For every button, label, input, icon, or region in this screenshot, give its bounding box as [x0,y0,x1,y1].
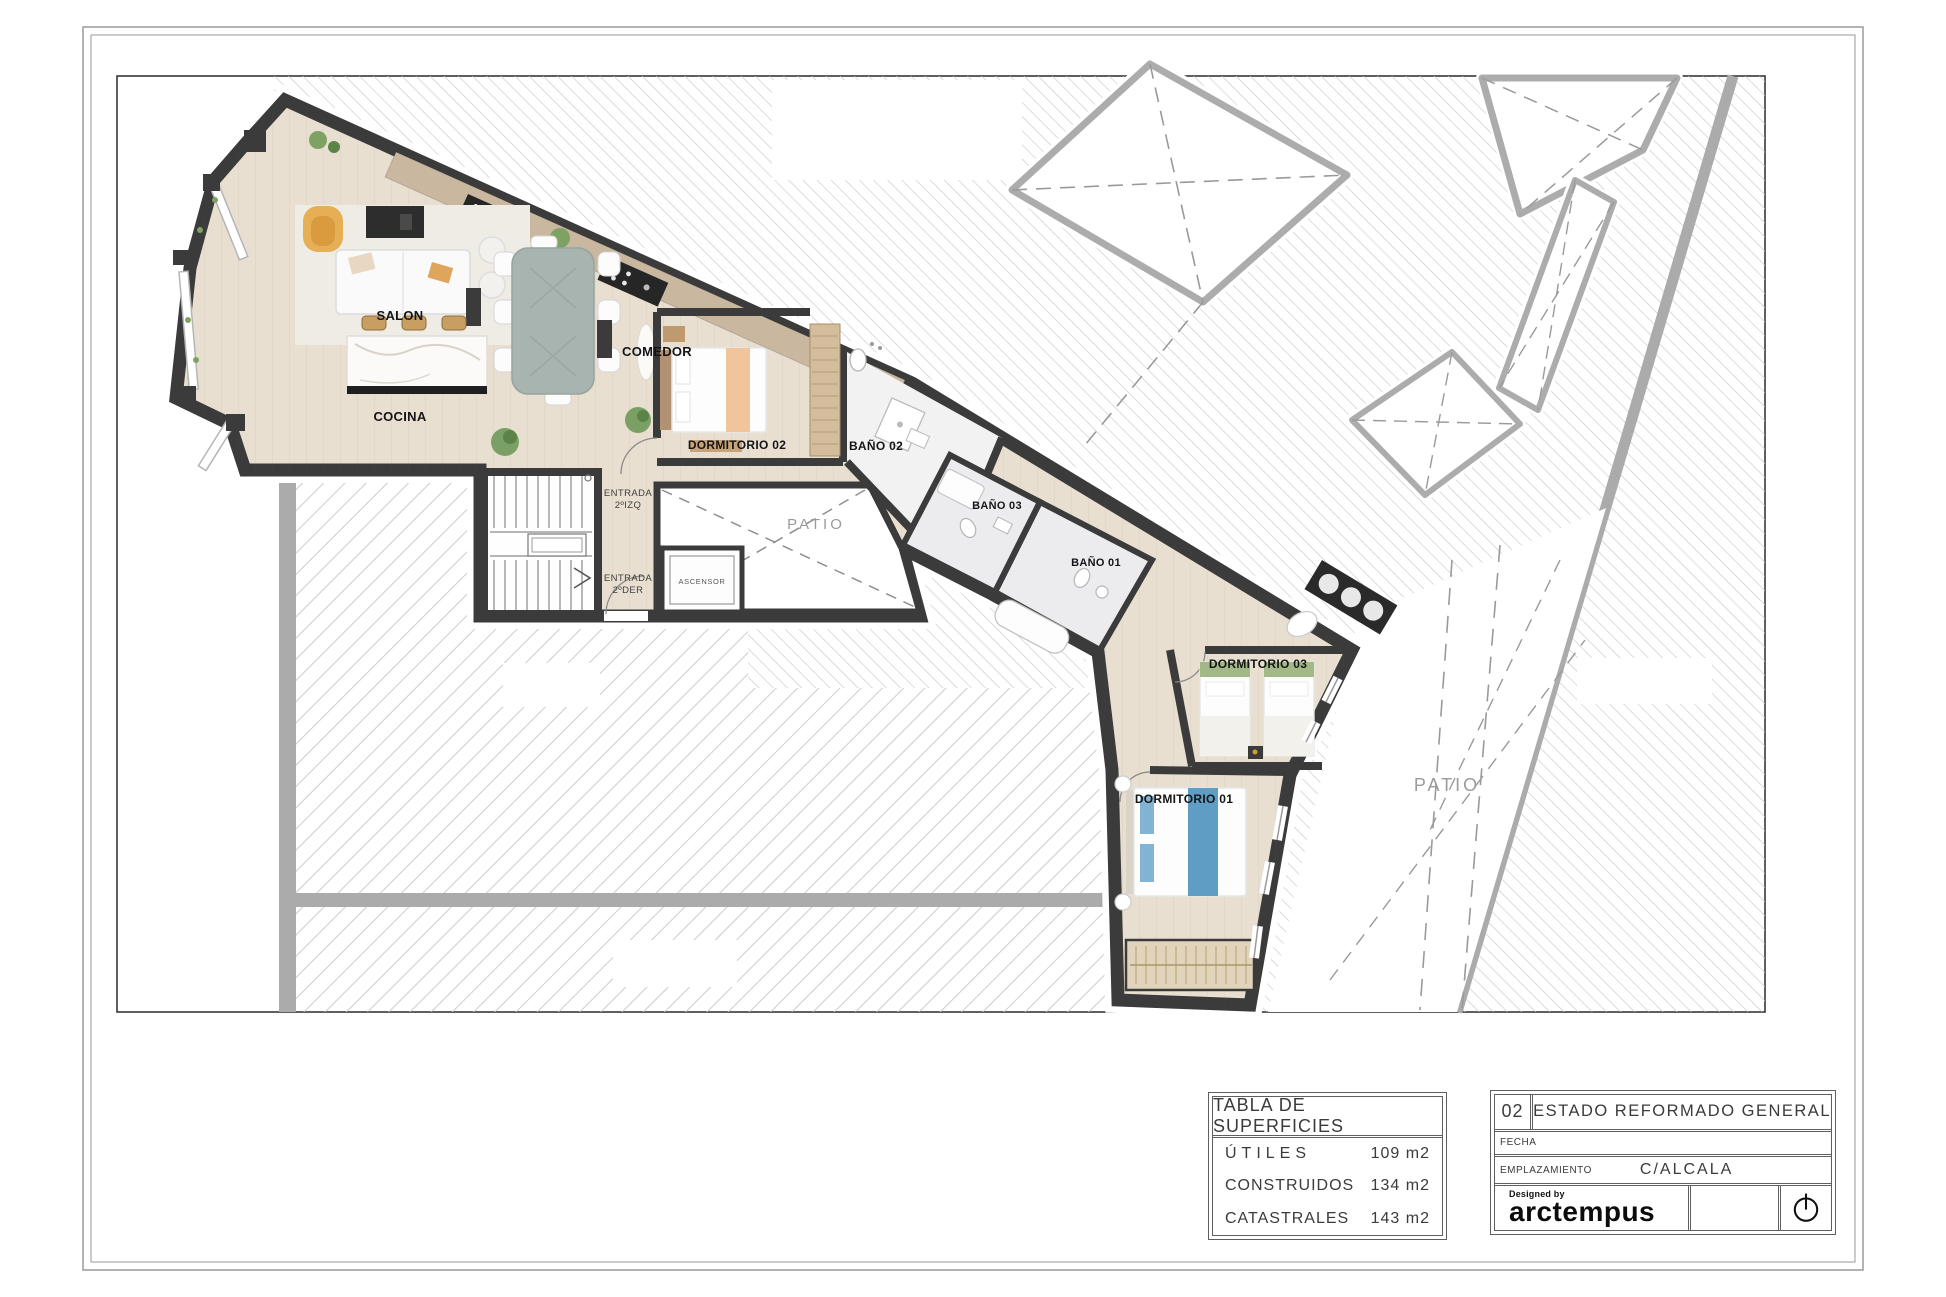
side-table [1115,894,1131,910]
armchair [303,206,343,252]
title-block: 02 ESTADO REFORMADO GENERAL FECHA EMPLAZ… [1490,1090,1836,1235]
plan-sheet: PATIO [0,0,1946,1297]
bed-headboard [1126,790,1134,894]
salon-label: SALON [377,308,424,323]
hatch-gap [503,663,600,707]
patio-large-label: PATIO [1414,775,1480,795]
comedor-label: COMEDOR [622,344,692,359]
brand-logo: Designed by arctempus [1495,1186,1691,1230]
entrada-der-label-2: 2ºDER [613,585,644,596]
bed-runner [726,348,750,432]
dining-table [512,248,594,394]
ascensor-label: ASCENSOR [679,577,726,586]
surface-table-title: TABLA DE SUPERFICIES [1213,1097,1442,1138]
surface-row-label: CONSTRUIDOS [1225,1177,1354,1195]
door-gap [604,611,648,621]
title-block-empty-cell [1691,1186,1781,1230]
table-row: CATASTRALES 143 m2 [1213,1203,1442,1235]
table-row: ÚTILES 109 m2 [1213,1138,1442,1170]
surface-row-label: ÚTILES [1225,1145,1311,1163]
bano-03-label: BAÑO 03 [972,499,1022,512]
wall-stub [466,288,481,326]
surface-row-value: 143 m2 [1371,1210,1430,1228]
toilet [850,349,866,371]
tv-unit [366,206,424,238]
surface-row-label: CATASTRALES [1225,1210,1349,1228]
fecha-row: FECHA [1495,1132,1831,1158]
title-block-footer: Designed by arctempus [1495,1186,1831,1230]
bano-02-label: BAÑO 02 [849,438,903,453]
emplazamiento-value: C/ALCALA [1640,1161,1733,1179]
single-bed [1200,662,1250,756]
cocina-label: COCINA [373,409,426,424]
hatch-gap [772,80,1022,180]
sofa [336,250,470,314]
entrada-der-label-1: ENTRADA [604,573,652,584]
north-arrow-icon [1786,1186,1826,1230]
sheet-title: ESTADO REFORMADO GENERAL [1533,1095,1831,1129]
table-row: CONSTRUIDOS 134 m2 [1213,1170,1442,1202]
stairwell [484,472,598,614]
surface-table: TABLA DE SUPERFICIES ÚTILES 109 m2 CONST… [1208,1092,1447,1240]
sink [1096,586,1108,598]
emplazamiento-row: EMPLAZAMIENTO C/ALCALA [1495,1157,1831,1186]
north-cell [1781,1186,1831,1230]
neighbor-wall-horizontal [296,893,1152,907]
hatch-gap [613,940,737,987]
surface-row-value: 134 m2 [1371,1177,1430,1195]
entrada-izq-label-1: ENTRADA [604,488,652,499]
elevator: ASCENSOR [662,548,742,612]
sheet-number: 02 [1495,1095,1533,1129]
dormitorio-01-label: DORMITORIO 01 [1135,792,1233,806]
wall-stub [597,320,612,358]
hatch-gap [1577,658,1712,704]
title-block-header: 02 ESTADO REFORMADO GENERAL [1495,1095,1831,1132]
emplazamiento-label: EMPLAZAMIENTO [1495,1165,1592,1176]
brand-name: arctempus [1509,1198,1688,1226]
side-table [1115,776,1131,792]
surface-row-value: 109 m2 [1371,1145,1430,1163]
bed-headboard [660,350,672,430]
wardrobe [810,324,840,456]
fecha-label: FECHA [1495,1137,1536,1148]
bano-01-label: BAÑO 01 [1071,556,1121,569]
dormitorio-02-label: DORMITORIO 02 [688,438,786,452]
patio-small-label: PATIO [787,516,845,533]
dormitorio-03-label: DORMITORIO 03 [1209,657,1307,671]
neighbor-wall-vertical [279,470,296,1012]
entrada-izq-label-2: 2ºIZQ [615,500,642,511]
